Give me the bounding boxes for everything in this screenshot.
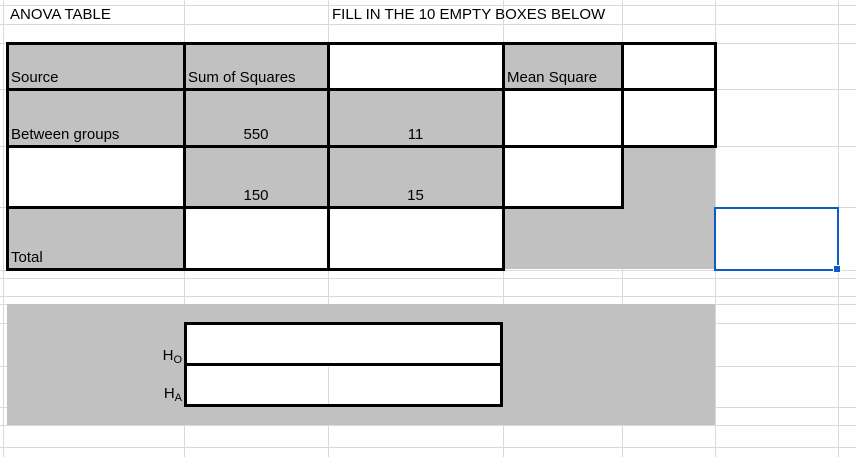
anova-cell-r1c1[interactable]: Source [7, 43, 184, 89]
anova-cell-r2c4[interactable] [503, 89, 622, 146]
anova-cell-r3c1[interactable] [7, 146, 184, 207]
h-null-subscript: O [173, 354, 182, 366]
anova-cell-r3c2[interactable]: 150 [184, 146, 328, 207]
table-border-segment [183, 42, 186, 271]
h-alt-answer-box[interactable] [187, 366, 500, 404]
gridline [0, 425, 856, 426]
anova-cell-r3c5[interactable] [622, 146, 715, 207]
gridline [328, 367, 329, 404]
table-border-segment [6, 88, 717, 91]
anova-cell-r4c5[interactable] [622, 207, 715, 269]
table-border-segment [714, 42, 717, 148]
h-null-base: H [163, 347, 174, 364]
anova-cell-r1c4[interactable]: Mean Square [503, 43, 622, 89]
sheet-title: ANOVA TABLE [10, 6, 111, 23]
instruction-text: FILL IN THE 10 EMPTY BOXES BELOW [332, 6, 605, 23]
anova-cell-r2c5[interactable] [622, 89, 715, 146]
anova-cell-r1c5[interactable] [622, 43, 715, 89]
table-border-segment [6, 42, 9, 271]
h-alt-label: HA [100, 385, 182, 407]
selected-cell[interactable] [714, 207, 839, 271]
anova-cell-r2c1[interactable]: Between groups [7, 89, 184, 146]
anova-cell-r2c3[interactable]: 11 [328, 89, 503, 146]
anova-cell-r4c4[interactable] [503, 207, 622, 269]
anova-cell-r4c1[interactable]: Total [7, 207, 184, 269]
anova-cell-r3c4[interactable] [503, 146, 622, 207]
gridline [0, 447, 856, 448]
gridline [0, 278, 856, 279]
spreadsheet-canvas: ANOVA TABLE FILL IN THE 10 EMPTY BOXES B… [0, 0, 856, 457]
h-alt-subscript: A [175, 392, 182, 404]
anova-cell-r1c3[interactable] [328, 43, 503, 89]
gridline [3, 0, 4, 457]
hypothesis-box-divider [184, 363, 503, 366]
table-border-segment [6, 42, 717, 45]
table-border-segment [502, 42, 505, 271]
table-border-segment [6, 145, 717, 148]
gridline [0, 296, 856, 297]
anova-cell-r4c2[interactable] [184, 207, 328, 269]
anova-cell-r3c3[interactable]: 15 [328, 146, 503, 207]
fill-handle[interactable] [833, 265, 841, 273]
table-border-segment [6, 268, 505, 271]
table-border-segment [6, 206, 624, 209]
table-border-segment [327, 42, 330, 271]
h-alt-base: H [164, 385, 175, 402]
table-border-segment [621, 42, 624, 209]
anova-cell-r4c3[interactable] [328, 207, 503, 269]
h-null-label: HO [100, 347, 182, 369]
anova-cell-r1c2[interactable]: Sum of Squares [184, 43, 328, 89]
gridline [0, 24, 856, 25]
anova-cell-r2c2[interactable]: 550 [184, 89, 328, 146]
h-null-answer-box[interactable] [187, 325, 500, 363]
